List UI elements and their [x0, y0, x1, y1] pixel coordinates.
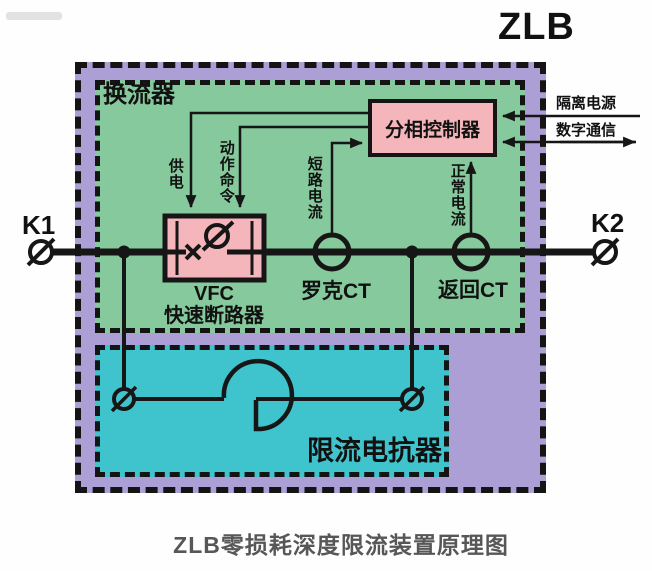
terminal-k1-icon	[28, 239, 54, 265]
phase-controller-label: 分相控制器	[385, 115, 480, 142]
vfc-model-label: VFC	[136, 283, 292, 305]
converter-label: 换流器	[103, 82, 175, 107]
diagram-canvas: ZLB 分相控制器	[0, 0, 652, 571]
return-ct-label: 返回CT	[438, 280, 508, 302]
watermark-strip	[6, 12, 62, 20]
diagram-title: ZLB	[498, 6, 575, 49]
isolated-power-label: 隔离电源	[556, 96, 616, 112]
vfc-breaker-label: VFC 快速断路器	[136, 283, 292, 327]
reactor-label: 限流电抗器	[307, 437, 442, 465]
short-circuit-current-label: 短路电流	[306, 156, 322, 220]
terminal-k1-label: K1	[22, 212, 55, 239]
digital-comm-label: 数字通信	[556, 123, 616, 139]
normal-current-label: 正常电流	[449, 163, 465, 227]
terminal-k2-label: K2	[591, 210, 624, 237]
trip-command-signal-label: 动作命令	[218, 140, 234, 204]
supply-signal-label: 供电	[167, 158, 183, 190]
vfc-name-label: 快速断路器	[136, 305, 292, 327]
terminal-k2-icon	[592, 239, 618, 265]
phase-controller-box: 分相控制器	[368, 99, 497, 157]
rogowski-ct-label: 罗克CT	[301, 281, 371, 303]
diagram-caption: ZLB零损耗深度限流装置原理图	[30, 526, 652, 560]
